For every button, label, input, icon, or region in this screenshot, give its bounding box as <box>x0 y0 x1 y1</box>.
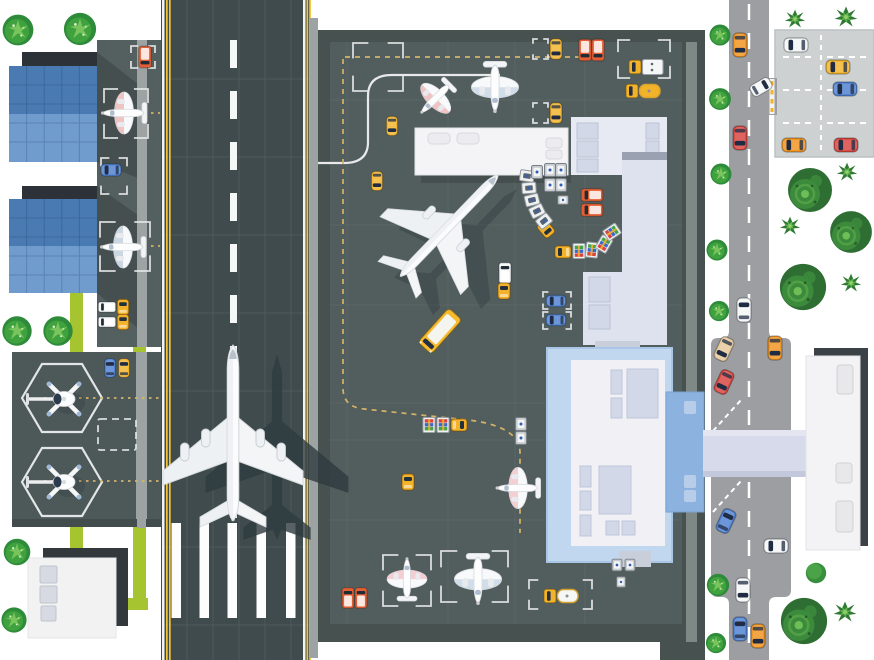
runway <box>161 0 311 660</box>
tree-bush <box>709 301 729 321</box>
cartW-vehicle <box>522 182 537 194</box>
tug-vehicle <box>402 474 414 490</box>
apron-service-road <box>686 42 697 656</box>
tug-vehicle <box>498 283 510 299</box>
car-vehicle <box>550 39 562 59</box>
car-vehicle <box>833 82 857 96</box>
tree-bush <box>2 316 31 345</box>
van-vehicle <box>499 263 511 283</box>
car-vehicle <box>371 171 382 190</box>
truckBox-vehicle <box>629 60 663 75</box>
cartB-vehicle <box>437 418 449 433</box>
office-skylights <box>40 566 57 621</box>
hangar-taxiway <box>137 40 147 347</box>
car-vehicle <box>733 126 747 150</box>
car-vehicle <box>105 359 116 378</box>
car-vehicle <box>546 314 566 325</box>
van-vehicle <box>355 588 367 608</box>
tree-bush <box>707 574 729 596</box>
terminal-atrium <box>666 392 704 512</box>
car-vehicle <box>826 60 850 74</box>
cargo-container <box>558 196 568 205</box>
truckTank-vehicle <box>544 589 578 603</box>
cartB-vehicle <box>423 418 435 433</box>
terminal-main-roof <box>571 360 665 546</box>
car-vehicle <box>784 38 808 52</box>
tree-bush <box>64 13 96 45</box>
van-vehicle <box>98 317 115 327</box>
car-vehicle <box>733 617 747 641</box>
tree-bush <box>711 164 732 185</box>
terminal-mid-block <box>583 272 667 345</box>
van-vehicle <box>579 39 592 61</box>
tug-vehicle <box>117 299 128 314</box>
tree-bush <box>1 607 26 632</box>
van-vehicle <box>98 302 115 312</box>
tree-bush <box>709 88 731 110</box>
helipad-taxiway <box>136 352 147 519</box>
runway-side-strip <box>310 18 318 658</box>
tug-vehicle <box>451 419 467 431</box>
cargo-container <box>545 164 556 177</box>
truckTank-vehicle <box>626 84 660 98</box>
tree-bush <box>4 539 31 566</box>
hangar-1 <box>9 52 97 162</box>
airport-illustration <box>0 0 874 660</box>
tree-big <box>830 211 872 253</box>
car-vehicle <box>737 298 751 322</box>
van-vehicle <box>139 46 152 68</box>
tug-vehicle <box>555 246 571 258</box>
cartB-vehicle <box>573 244 585 259</box>
tree-big <box>788 168 832 212</box>
strip-joint <box>137 519 146 528</box>
cargo-container <box>545 179 556 192</box>
car-vehicle <box>546 295 566 306</box>
tree-bush <box>43 316 72 345</box>
tree-round <box>806 563 826 583</box>
cargo-container <box>617 577 626 587</box>
tree-bush <box>710 25 731 46</box>
car-vehicle <box>386 116 397 135</box>
car-vehicle <box>764 539 788 553</box>
car-vehicle <box>782 138 806 152</box>
tree-big <box>780 264 826 310</box>
car-vehicle <box>119 359 130 378</box>
tree-bush <box>706 633 726 653</box>
van-vehicle <box>342 588 354 608</box>
car-vehicle <box>834 138 858 152</box>
east-building <box>806 348 868 550</box>
tree-bush <box>707 240 728 261</box>
van-vehicle <box>581 189 603 202</box>
car-vehicle <box>550 103 562 123</box>
pedestrian-bridge <box>703 430 807 477</box>
car-vehicle <box>733 33 747 57</box>
cargo-container <box>516 432 527 445</box>
car-vehicle <box>751 624 765 648</box>
van-vehicle <box>581 204 603 217</box>
airport-map <box>0 0 874 660</box>
car-vehicle <box>768 336 782 360</box>
hangar-2 <box>9 186 97 293</box>
tree-big <box>781 598 827 644</box>
cargo-container <box>532 166 543 179</box>
cargo-container <box>516 418 527 431</box>
car-vehicle <box>101 164 121 176</box>
cargo-container <box>612 559 622 571</box>
cargo-container <box>556 164 567 177</box>
tree-bush <box>3 15 34 46</box>
van-vehicle <box>592 39 605 61</box>
terminal-parapet <box>622 152 667 160</box>
cargo-container <box>556 179 567 192</box>
cargo-container <box>625 559 635 571</box>
tug-vehicle <box>117 314 128 329</box>
car-vehicle <box>736 578 750 602</box>
